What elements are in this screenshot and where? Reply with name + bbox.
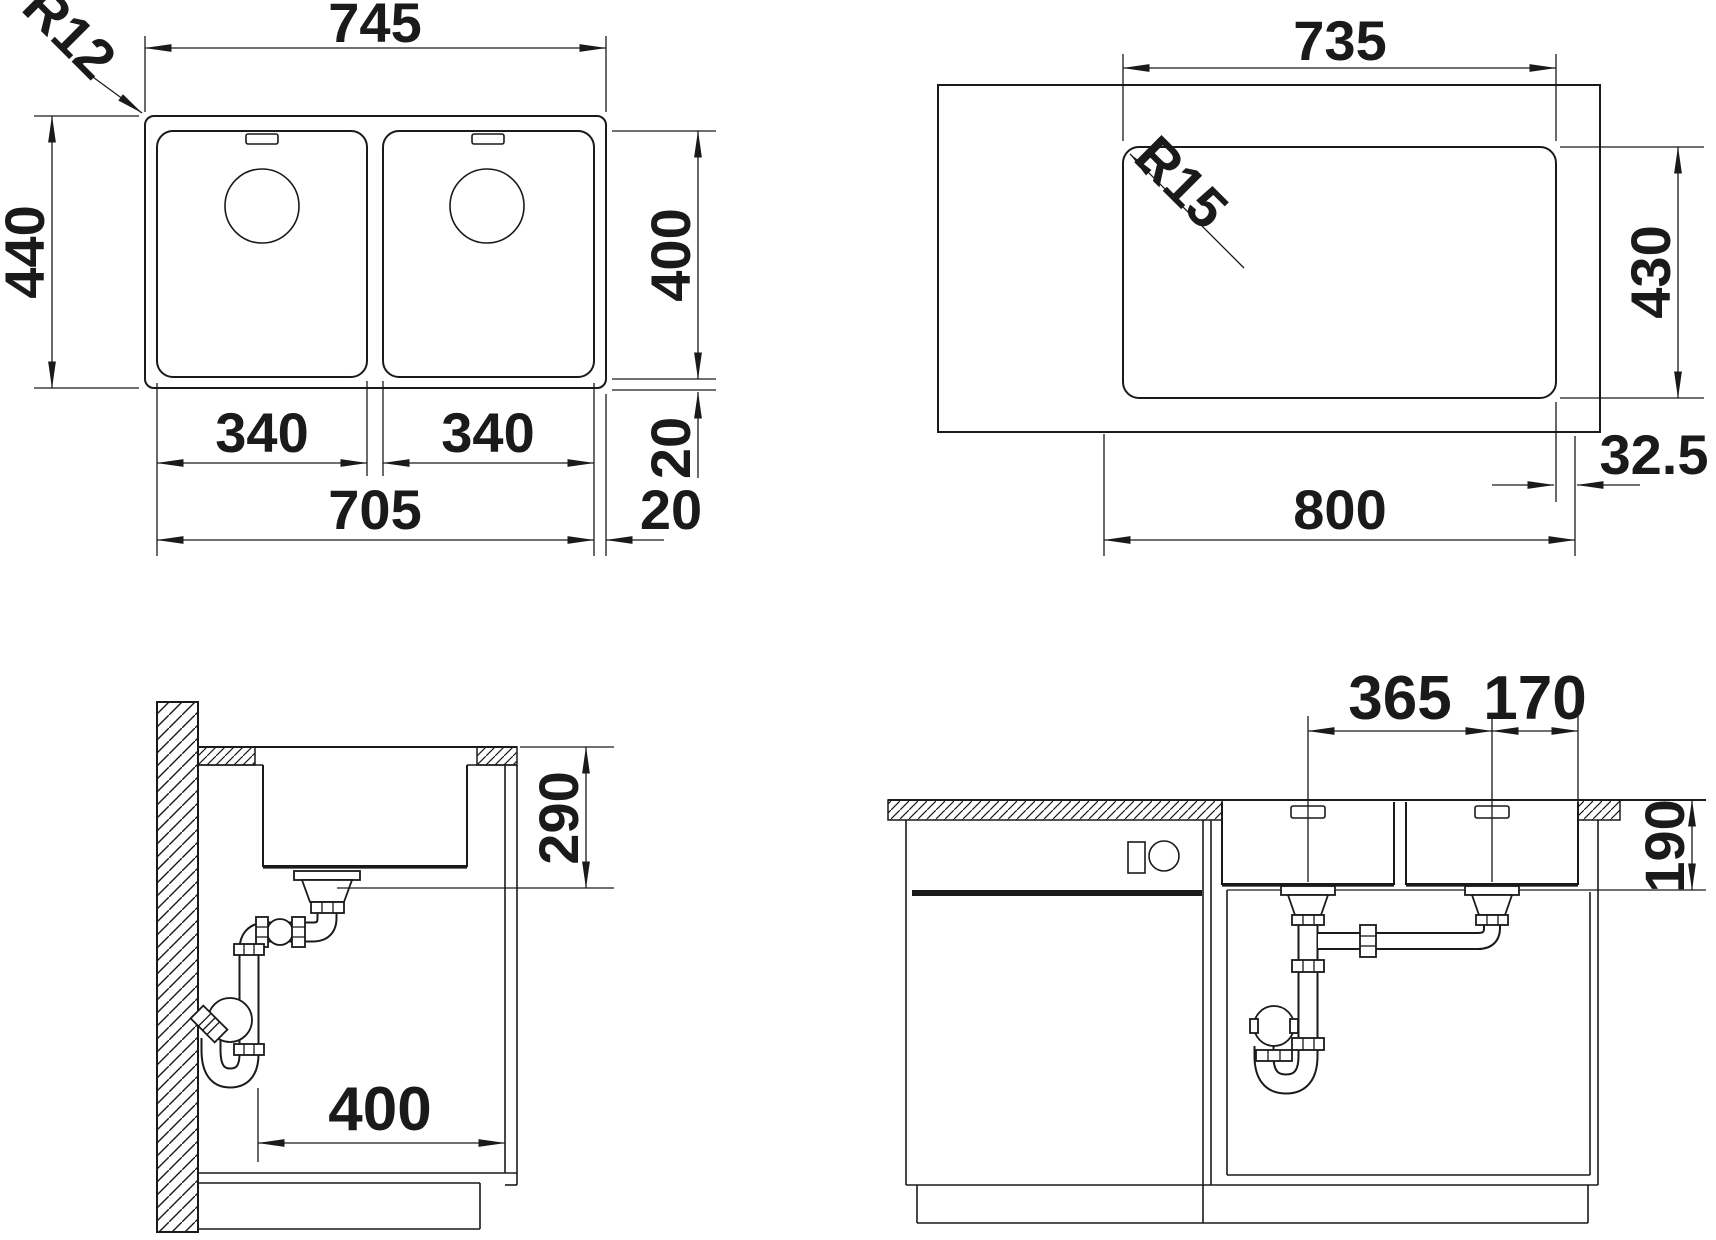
- technical-drawing-page: 745 440 R12 400 20 340 340 705 20 735 R1…: [0, 0, 1716, 1240]
- drains-and-trap-front: [1250, 886, 1519, 1084]
- rib-nut: [256, 917, 268, 947]
- sink-outer-outline: [145, 116, 606, 388]
- dim-text-340-left: 340: [215, 401, 308, 464]
- dim-text-745: 745: [328, 0, 421, 54]
- view-front-section: 365 170 190: [888, 664, 1706, 1223]
- trap-tab-left: [1250, 1019, 1258, 1033]
- rib-nut: [1476, 915, 1508, 925]
- dim-text-400: 400: [639, 208, 702, 301]
- sink-installation-drawing: 745 440 R12 400 20 340 340 705 20 735 R1…: [0, 0, 1716, 1240]
- bowl-right-outline: [383, 131, 594, 377]
- rib-nut: [1360, 925, 1376, 957]
- overflow-slot-left: [246, 134, 278, 144]
- strainer-body-left: [1288, 895, 1328, 915]
- worktop-section: [198, 747, 517, 765]
- appliance-button: [1128, 842, 1145, 873]
- dim-text-20-back: 20: [639, 417, 702, 479]
- rib-nut: [1256, 1050, 1292, 1061]
- rib-nut: [311, 902, 344, 913]
- bowl-section-outline: [263, 765, 467, 866]
- drain-hole-left: [225, 169, 299, 243]
- dim-text-290: 290: [527, 771, 590, 864]
- dim-text-170: 170: [1483, 664, 1586, 733]
- strainer-flange-left: [1281, 886, 1335, 895]
- bowls-front: [1222, 802, 1578, 885]
- trap-body-front: [1254, 1006, 1294, 1046]
- dim-text-r12: R12: [11, 0, 128, 91]
- strainer-body: [302, 880, 352, 902]
- strainer-body-right: [1472, 895, 1512, 915]
- drain-hole-right: [450, 169, 524, 243]
- dim-text-400-clearance: 400: [328, 1075, 431, 1144]
- dim-text-190: 190: [1633, 799, 1696, 892]
- strainer-flange: [294, 871, 360, 880]
- strainer-flange-right: [1465, 886, 1519, 895]
- worktop-outline: [938, 85, 1600, 432]
- rib-nut: [234, 1044, 264, 1055]
- dim-text-440: 440: [0, 205, 56, 298]
- rib-nut: [234, 944, 264, 955]
- view-side-section: 290 400: [157, 702, 614, 1232]
- dim-text-430: 430: [1619, 225, 1682, 318]
- rib-nut: [292, 917, 305, 947]
- rib-nut: [1292, 960, 1324, 972]
- bowl-left-outline: [157, 131, 367, 377]
- dim-text-735: 735: [1293, 9, 1386, 72]
- view-cutout-plan: 735 R15 430 32.5 800: [938, 9, 1709, 556]
- overflow-slot-right: [472, 134, 504, 144]
- rib-nut: [1292, 915, 1324, 925]
- dim-text-800: 800: [1293, 478, 1386, 541]
- dim-text-705: 705: [328, 478, 421, 541]
- dim-text-32-5: 32.5: [1600, 423, 1709, 486]
- wall-hatched: [157, 702, 198, 1232]
- view-top-plan: 745 440 R12 400 20 340 340 705 20: [0, 0, 716, 556]
- rib-nut: [1292, 1038, 1324, 1050]
- trap-tab-right: [1290, 1019, 1298, 1033]
- appliance-knob: [1149, 841, 1179, 871]
- union-bulge: [267, 919, 293, 945]
- dim-text-r15: R15: [1123, 124, 1240, 241]
- worktop-front: [888, 800, 1706, 820]
- dim-text-340-right: 340: [441, 401, 534, 464]
- drain-and-trap-side: [191, 871, 360, 1078]
- dim-text-365: 365: [1348, 664, 1451, 733]
- dim-text-20-side: 20: [640, 478, 702, 541]
